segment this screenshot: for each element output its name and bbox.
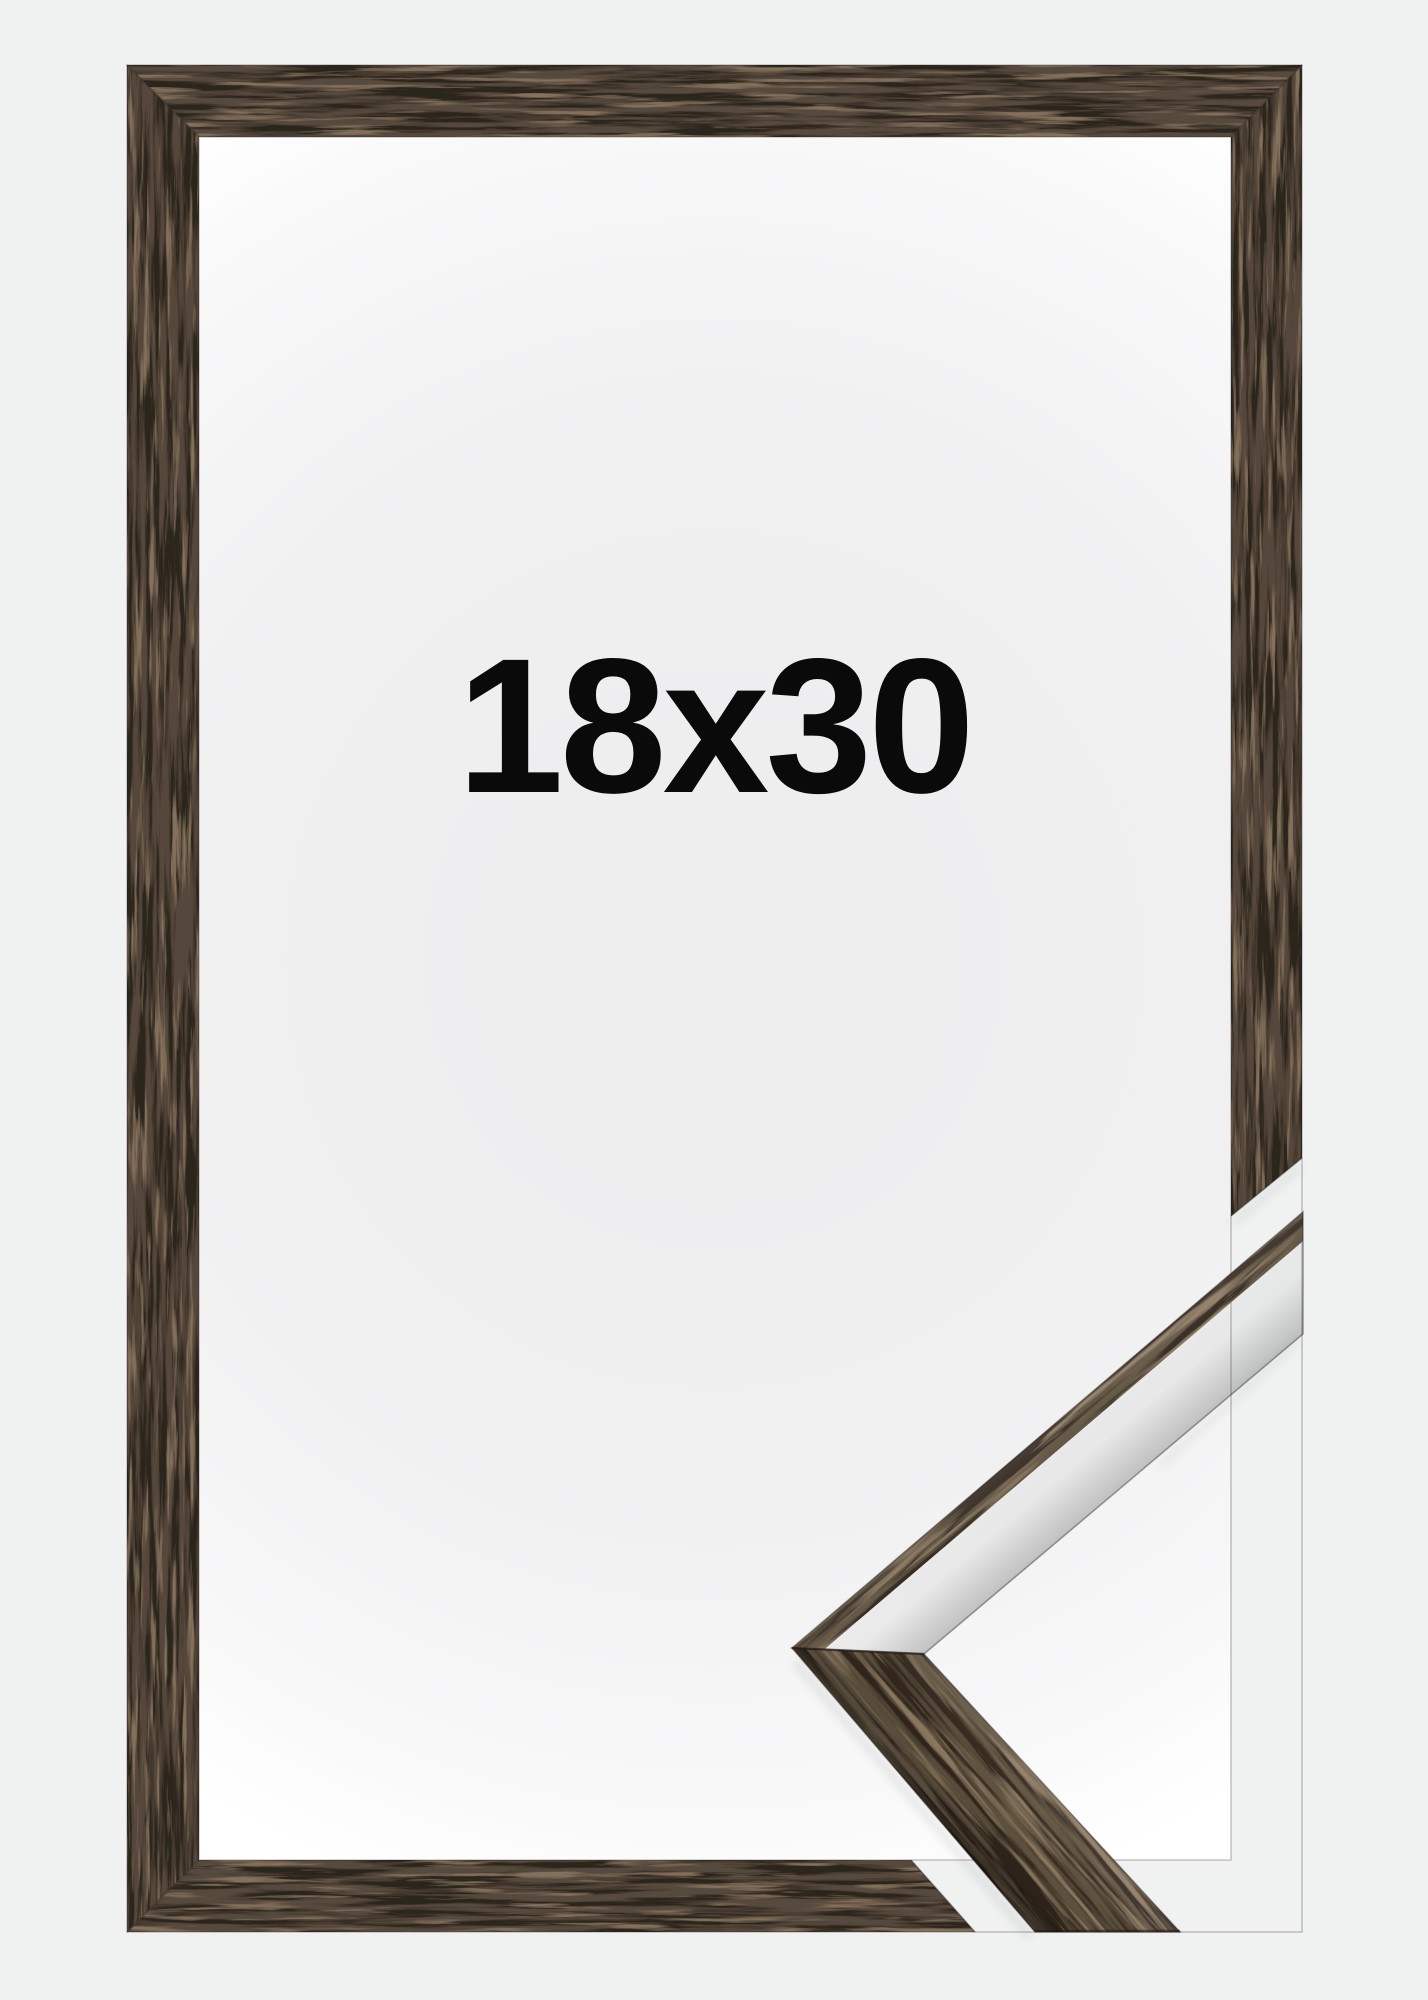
frame-top-bar: [127, 65, 1302, 137]
frame-product-image: 18x30: [0, 0, 1428, 2000]
frame-bottom-bar: [127, 1860, 975, 1932]
frame-product-svg: 18x30: [0, 0, 1428, 2000]
frame-left-bar: [127, 65, 199, 1932]
frame-interior: [199, 137, 1231, 1860]
frame-right-bar: [1231, 65, 1302, 1216]
frame-size-label: 18x30: [457, 618, 971, 833]
